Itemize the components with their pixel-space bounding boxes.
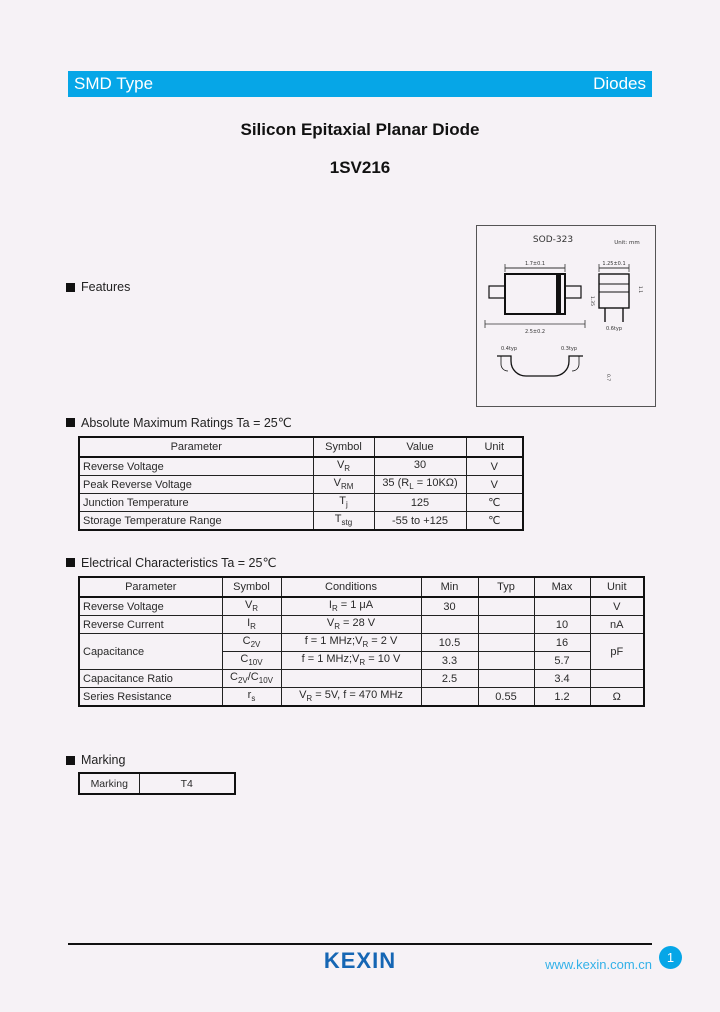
electrical-characteristics-heading-label: Electrical Characteristics Ta = 25℃	[81, 555, 276, 570]
marking-table: Marking T4	[78, 772, 236, 795]
marking-value-cell: T4	[139, 773, 235, 794]
dim-front-height: 1.35	[589, 296, 595, 306]
col-symbol: Symbol	[313, 437, 374, 457]
cell-parameter: Reverse Voltage	[79, 597, 222, 616]
col-parameter: Parameter	[79, 577, 222, 597]
electrical-characteristics-heading: Electrical Characteristics Ta = 25℃	[66, 555, 276, 570]
cell-parameter: Reverse Voltage	[79, 457, 313, 476]
cell-typ	[478, 634, 534, 652]
cell-symbol: VR	[222, 597, 281, 616]
datasheet-page: SMD Type Diodes Silicon Epitaxial Planar…	[0, 0, 720, 1012]
cell-min	[421, 616, 478, 634]
website-link[interactable]: www.kexin.com.cn	[545, 957, 652, 972]
cell-parameter: Series Resistance	[79, 688, 222, 707]
cell-symbol: rs	[222, 688, 281, 707]
square-bullet-icon	[66, 283, 75, 292]
cell-conditions	[281, 670, 421, 688]
marking-heading-label: Marking	[81, 753, 125, 767]
col-typ: Typ	[478, 577, 534, 597]
electrical-characteristics-table: Parameter Symbol Conditions Min Typ Max …	[78, 576, 645, 707]
square-bullet-icon	[66, 418, 75, 427]
cell-parameter: Capacitance Ratio	[79, 670, 222, 688]
footer-divider	[68, 943, 652, 945]
col-conditions: Conditions	[281, 577, 421, 597]
dim-side-height: 1.1	[637, 286, 643, 293]
dim-front-top: 1.7±0.1	[525, 261, 545, 267]
cell-parameter: Peak Reverse Voltage	[79, 476, 313, 494]
cell-value: -55 to +125	[374, 512, 466, 531]
cell-min	[421, 688, 478, 707]
cell-value: 35 (RL = 10KΩ)	[374, 476, 466, 494]
cell-min: 3.3	[421, 652, 478, 670]
cell-value: 30	[374, 457, 466, 476]
cell-max: 3.4	[534, 670, 590, 688]
cell-unit: pF	[590, 634, 644, 670]
table-row: Capacitance C2V f = 1 MHz;VR = 2 V 10.5 …	[79, 634, 644, 652]
abs-max-ratings-table: Parameter Symbol Value Unit Reverse Volt…	[78, 436, 524, 531]
table-header-row: Parameter Symbol Conditions Min Typ Max …	[79, 577, 644, 597]
cell-value: 125	[374, 494, 466, 512]
cell-symbol: C10V	[222, 652, 281, 670]
cell-min: 10.5	[421, 634, 478, 652]
cell-parameter: Junction Temperature	[79, 494, 313, 512]
table-row: Peak Reverse Voltage VRM 35 (RL = 10KΩ) …	[79, 476, 523, 494]
cell-typ	[478, 652, 534, 670]
dim-bottom-right: 0.3typ	[561, 346, 577, 352]
abs-max-ratings-heading: Absolute Maximum Ratings Ta = 25℃	[66, 415, 292, 430]
cell-conditions: VR = 5V, f = 470 MHz	[281, 688, 421, 707]
cell-unit: ℃	[466, 512, 523, 531]
col-max: Max	[534, 577, 590, 597]
table-row: Storage Temperature Range Tstg -55 to +1…	[79, 512, 523, 531]
col-value: Value	[374, 437, 466, 457]
dim-front-bottom: 2.5±0.2	[525, 329, 545, 335]
table-row: Junction Temperature Tj 125 ℃	[79, 494, 523, 512]
cell-min: 2.5	[421, 670, 478, 688]
marking-heading: Marking	[66, 753, 125, 767]
cell-max: 1.2	[534, 688, 590, 707]
cell-conditions: VR = 28 V	[281, 616, 421, 634]
cell-unit: Ω	[590, 688, 644, 707]
dim-side-bottom: 0.6typ	[606, 326, 622, 332]
package-name-label: SOD-323	[533, 235, 573, 245]
cell-unit: nA	[590, 616, 644, 634]
abs-max-ratings-heading-label: Absolute Maximum Ratings Ta = 25℃	[81, 415, 292, 430]
cell-typ	[478, 670, 534, 688]
cell-max	[534, 597, 590, 616]
cell-conditions: f = 1 MHz;VR = 2 V	[281, 634, 421, 652]
dim-bottom-left: 0.4typ	[501, 346, 517, 352]
package-outline-drawing: SOD-323 Unit: mm 1.7±0.1 2.5±0.2 1.35 1.…	[477, 226, 653, 404]
cell-symbol: VR	[313, 457, 374, 476]
table-row: Series Resistance rs VR = 5V, f = 470 MH…	[79, 688, 644, 707]
col-parameter: Parameter	[79, 437, 313, 457]
table-row: Reverse Current IR VR = 28 V 10 nA	[79, 616, 644, 634]
cell-parameter: Reverse Current	[79, 616, 222, 634]
col-unit: Unit	[590, 577, 644, 597]
cell-conditions: IR = 1 μA	[281, 597, 421, 616]
cell-max: 5.7	[534, 652, 590, 670]
cell-conditions: f = 1 MHz;VR = 10 V	[281, 652, 421, 670]
package-diagram: SOD-323 Unit: mm 1.7±0.1 2.5±0.2 1.35 1.…	[476, 225, 656, 407]
cell-typ	[478, 616, 534, 634]
table-row: Marking T4	[79, 773, 235, 794]
table-header-row: Parameter Symbol Value Unit	[79, 437, 523, 457]
features-heading: Features	[66, 280, 130, 294]
col-min: Min	[421, 577, 478, 597]
features-heading-label: Features	[81, 280, 130, 294]
cell-symbol: C2V/C10V	[222, 670, 281, 688]
part-number: 1SV216	[68, 158, 652, 178]
doc-title: Silicon Epitaxial Planar Diode	[68, 120, 652, 140]
cell-unit	[590, 670, 644, 688]
square-bullet-icon	[66, 558, 75, 567]
cell-symbol: IR	[222, 616, 281, 634]
table-row: Reverse Voltage VR 30 V	[79, 457, 523, 476]
cell-unit: ℃	[466, 494, 523, 512]
dim-side-top: 1.25±0.1	[602, 261, 625, 267]
col-unit: Unit	[466, 437, 523, 457]
table-row: Capacitance Ratio C2V/C10V 2.5 3.4	[79, 670, 644, 688]
unit-label: Unit: mm	[614, 240, 640, 246]
square-bullet-icon	[66, 756, 75, 765]
cell-unit: V	[466, 457, 523, 476]
col-symbol: Symbol	[222, 577, 281, 597]
cell-symbol: Tj	[313, 494, 374, 512]
cell-symbol: Tstg	[313, 512, 374, 531]
marking-label-cell: Marking	[79, 773, 139, 794]
doc-type-label: SMD Type	[74, 74, 153, 94]
cell-parameter: Storage Temperature Range	[79, 512, 313, 531]
cell-symbol: VRM	[313, 476, 374, 494]
cell-min: 30	[421, 597, 478, 616]
header-bar: SMD Type Diodes	[68, 71, 652, 97]
cell-unit: V	[466, 476, 523, 494]
cell-typ: 0.55	[478, 688, 534, 707]
page-number-badge: 1	[659, 946, 682, 969]
cell-symbol: C2V	[222, 634, 281, 652]
category-label: Diodes	[593, 74, 646, 94]
cell-typ	[478, 597, 534, 616]
cell-unit: V	[590, 597, 644, 616]
cell-parameter: Capacitance	[79, 634, 222, 670]
cell-max: 16	[534, 634, 590, 652]
cell-max: 10	[534, 616, 590, 634]
table-row: Reverse Voltage VR IR = 1 μA 30 V	[79, 597, 644, 616]
dim-bottom-height: 0.7	[605, 374, 611, 381]
